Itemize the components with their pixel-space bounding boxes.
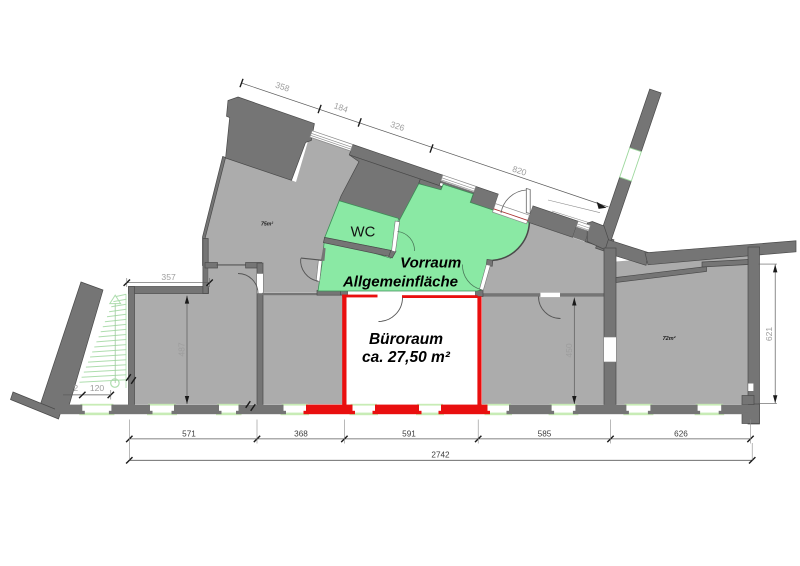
svg-text:WC: WC bbox=[351, 225, 376, 241]
svg-text:487: 487 bbox=[177, 342, 187, 357]
svg-text:820: 820 bbox=[511, 164, 528, 178]
svg-text:72m²: 72m² bbox=[663, 335, 676, 342]
svg-text:75m²: 75m² bbox=[261, 221, 273, 227]
svg-text:Vorraum: Vorraum bbox=[400, 255, 461, 272]
svg-text:Allgemeinfläche: Allgemeinfläche bbox=[342, 274, 458, 291]
svg-text:585: 585 bbox=[538, 429, 552, 438]
svg-text:326: 326 bbox=[389, 119, 406, 133]
svg-text:450: 450 bbox=[564, 343, 574, 358]
svg-text:2: 2 bbox=[73, 383, 78, 393]
svg-text:2742: 2742 bbox=[431, 451, 450, 460]
svg-text:184: 184 bbox=[333, 100, 350, 114]
svg-text:591: 591 bbox=[402, 429, 416, 438]
svg-text:357: 357 bbox=[161, 272, 176, 282]
svg-text:120: 120 bbox=[90, 383, 105, 393]
svg-text:ca. 27,50 m²: ca. 27,50 m² bbox=[362, 349, 451, 366]
svg-text:626: 626 bbox=[674, 429, 688, 438]
svg-text:368: 368 bbox=[294, 429, 308, 438]
svg-text:Büroraum: Büroraum bbox=[369, 331, 443, 348]
svg-text:621: 621 bbox=[764, 327, 774, 342]
svg-text:571: 571 bbox=[182, 429, 196, 438]
svg-text:358: 358 bbox=[274, 80, 291, 94]
